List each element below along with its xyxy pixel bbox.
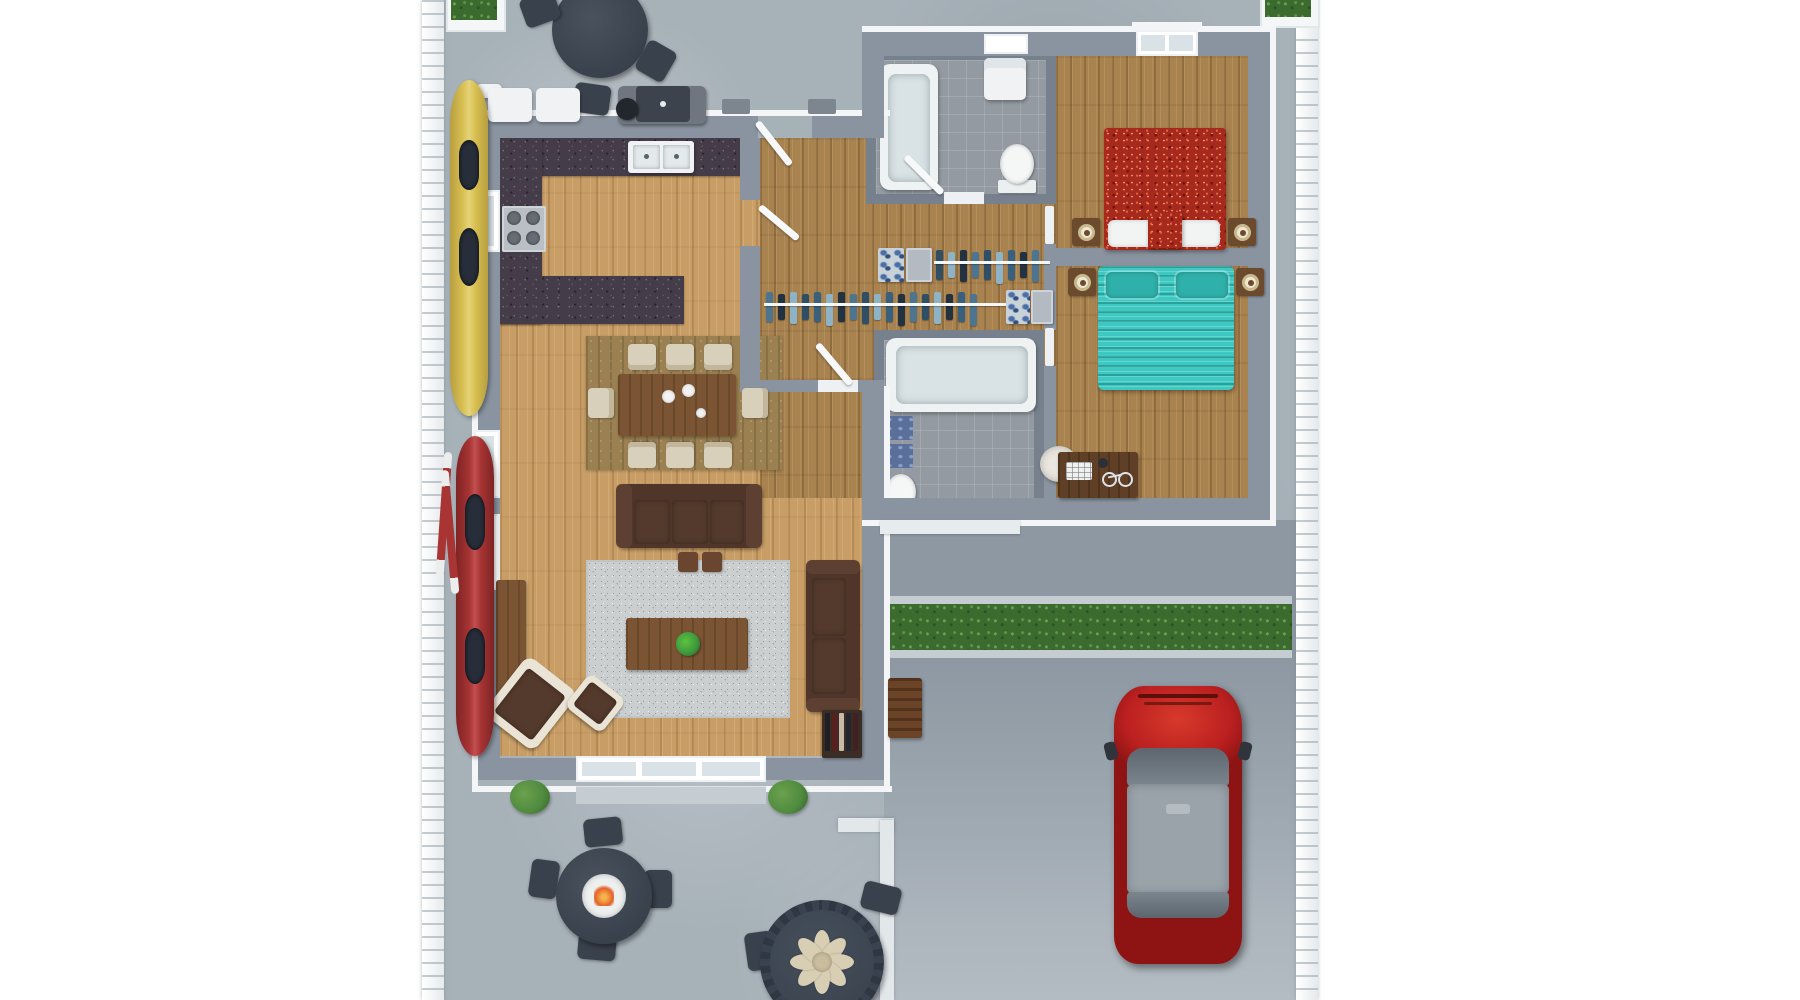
bedroom1-window-pane-1 — [1141, 35, 1165, 51]
wall-right-living — [862, 392, 884, 780]
spine-item — [846, 713, 851, 751]
garment-item — [984, 250, 991, 280]
garment-item — [996, 252, 1003, 284]
porch-mat-right — [808, 99, 836, 114]
garment-item — [922, 294, 929, 320]
wall-hall-upper — [740, 138, 760, 200]
garment-item — [936, 250, 943, 280]
patio-step-ledge — [576, 786, 766, 804]
spine-item — [832, 713, 837, 751]
bedroom1-lamp-left — [1078, 224, 1095, 241]
closet-row2-bin-blue — [1006, 290, 1030, 324]
hedge-curb-top — [890, 596, 1292, 604]
grill-kettle — [616, 98, 638, 120]
stove-burner-2 — [526, 211, 540, 225]
planter-top-left-shrub — [451, 0, 497, 20]
garment-item — [970, 294, 977, 326]
car-roof — [1127, 784, 1229, 894]
garment-item — [910, 292, 917, 322]
garment-item — [1008, 250, 1015, 280]
garment-item — [960, 250, 967, 282]
car-rear-window — [1127, 892, 1229, 918]
footstool-1 — [678, 552, 698, 572]
cube-stool-1 — [488, 88, 532, 122]
hedge-row — [890, 604, 1292, 650]
garment-item — [874, 294, 881, 320]
flame-icon — [594, 884, 614, 906]
kitchen-island — [500, 276, 684, 324]
courtyard-step — [880, 520, 1020, 534]
spine-item — [839, 713, 844, 751]
dining-plate-1 — [662, 390, 675, 403]
floorplan-canvas — [0, 0, 1800, 1000]
desk-mug — [1098, 458, 1108, 468]
planter-top-right-shrub — [1265, 0, 1311, 17]
wall-hall-stub-right — [858, 380, 884, 392]
dining-plate-2 — [682, 384, 695, 397]
bathroom1-toilet — [1000, 144, 1034, 184]
loveseat-cushion-2 — [812, 638, 846, 694]
garment-item — [826, 294, 833, 326]
bedroom1-lamp-right — [1234, 224, 1251, 241]
flower-center-dot — [812, 952, 832, 972]
footstool-2 — [702, 552, 722, 572]
garment-item — [778, 294, 785, 320]
garment-item — [958, 292, 965, 322]
car-grille — [1138, 694, 1218, 698]
closet-row2-garments — [766, 290, 1004, 328]
kayak-red-cockpit-1 — [465, 494, 485, 550]
sliding-window-pane-3 — [702, 762, 760, 776]
closet-row1-garments — [936, 248, 1048, 286]
bedroom-block-trim-right — [1270, 26, 1276, 526]
car-windshield — [1127, 748, 1229, 786]
cube-stool-2 — [536, 88, 580, 122]
bedroom1-bed-runner — [1148, 212, 1182, 248]
kayak-yellow-cockpit-2 — [459, 228, 479, 286]
bedroom-divider-wall — [1056, 248, 1248, 266]
bathroom2-tub-basin — [896, 346, 1028, 404]
bathroom1-door-threshold — [944, 192, 984, 204]
stove-burner-4 — [526, 231, 540, 245]
garment-item — [766, 292, 773, 322]
sliding-window-pane-2 — [642, 762, 696, 776]
garment-item — [814, 292, 821, 322]
garment-item — [1020, 252, 1027, 278]
dining-chair-bottom-1 — [628, 442, 656, 468]
dining-chair-bottom-3 — [704, 442, 732, 468]
spine-item — [825, 713, 830, 751]
sofa-cushion-1 — [634, 500, 670, 544]
bookshelf — [822, 710, 862, 758]
closet-row1-rod — [934, 261, 1050, 264]
bedroom-block-wall-top — [862, 32, 1270, 56]
hedge-curb-bottom — [890, 650, 1292, 658]
sofa-cushion-2 — [672, 500, 708, 544]
garment-item — [886, 292, 893, 322]
book-spines — [822, 710, 862, 754]
garment-item — [934, 292, 941, 324]
dining-chair-right — [742, 388, 768, 418]
stove-burner-3 — [507, 231, 521, 245]
bedroom2-lamp-left — [1074, 274, 1091, 291]
dining-chair-top-1 — [628, 344, 656, 370]
kayak-yellow-cockpit-1 — [459, 140, 479, 190]
kayak-red — [456, 436, 494, 756]
dining-plate-3 — [696, 408, 706, 418]
garment-item — [790, 292, 797, 324]
porch-mat-left — [722, 99, 750, 114]
bathroom1-linen-shelf — [984, 58, 1026, 100]
bedroom2-pillow-left — [1106, 272, 1158, 298]
bedroom1-door — [1045, 206, 1054, 244]
desk-notepad — [1066, 462, 1092, 480]
stove-burner-1 — [507, 211, 521, 225]
patio-shrub-left — [510, 780, 550, 814]
car-rear-detail — [1164, 930, 1192, 938]
firetable-chair-north — [583, 816, 624, 848]
garment-item — [972, 252, 979, 278]
garment-item — [898, 294, 905, 326]
sofa-armrest-left — [616, 484, 632, 548]
bedroom2-lamp-right — [1242, 274, 1259, 291]
bedroom-block-wall-left — [862, 32, 884, 116]
dining-table — [618, 374, 736, 436]
patio-shrub-right — [768, 780, 808, 814]
bedroom1-window-pane-2 — [1169, 35, 1193, 51]
closet-row2-rod — [764, 303, 1006, 306]
fence-right — [1296, 0, 1318, 1000]
closet-row1-bin-blue — [878, 248, 904, 282]
wall-top-right-segment — [812, 116, 884, 138]
car-grille-2 — [1144, 702, 1212, 705]
bedroom2-pillow-right — [1176, 272, 1228, 298]
bathroom1-window — [984, 34, 1028, 54]
kitchen-faucet-icon — [644, 154, 649, 159]
garment-item — [802, 294, 809, 320]
kayak-red-cockpit-2 — [465, 628, 485, 684]
sofa-armrest-right — [746, 484, 762, 548]
loveseat-armrest-top — [806, 560, 860, 574]
garment-item — [850, 294, 857, 320]
dining-chair-top-3 — [704, 344, 732, 370]
dining-chair-left — [588, 388, 614, 418]
garment-item — [946, 294, 953, 320]
garden-bench — [888, 678, 922, 738]
coffee-table-plant — [676, 632, 700, 656]
sliding-window-pane-1 — [582, 762, 636, 776]
spine-item — [853, 713, 858, 751]
bedroom-block-wall-bottom — [862, 498, 1270, 520]
sofa-cushion-3 — [710, 500, 744, 544]
closet-row2-bin-gray — [1031, 290, 1053, 324]
garment-item — [948, 252, 955, 278]
garment-item — [838, 292, 845, 322]
loveseat-cushion-1 — [812, 578, 846, 636]
car — [1114, 686, 1242, 964]
garment-item — [862, 292, 869, 324]
dining-chair-bottom-2 — [666, 442, 694, 468]
car-roof-detail — [1166, 804, 1190, 814]
dining-chair-top-2 — [666, 344, 694, 370]
kitchen-faucet-icon-2 — [674, 154, 679, 159]
closet-row1-bin-gray — [906, 248, 932, 282]
grill-knob-icon — [660, 101, 666, 107]
bedroom2-door — [1045, 328, 1054, 366]
garment-item — [1032, 250, 1039, 282]
wall-hall-lower — [740, 246, 760, 392]
